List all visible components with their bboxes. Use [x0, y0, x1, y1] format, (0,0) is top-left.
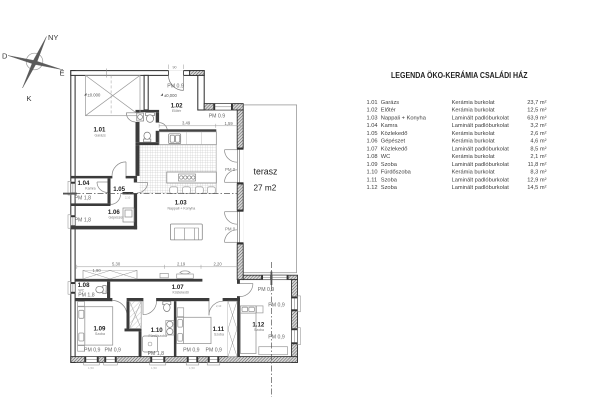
svg-text:23,7 m²: 23,7 m² — [527, 100, 546, 106]
svg-text:NY: NY — [48, 33, 58, 42]
svg-text:Nappali + Konyha: Nappali + Konyha — [381, 116, 427, 122]
svg-text:2,10: 2,10 — [102, 289, 108, 293]
svg-text:Kerámia burkolat: Kerámia burkolat — [452, 108, 495, 114]
svg-text:PM 0,9: PM 0,9 — [183, 347, 200, 353]
svg-text:Közlekedő: Közlekedő — [381, 146, 408, 152]
svg-text:PM 0.9: PM 0.9 — [209, 113, 226, 119]
svg-text:Laminált padlóburkolat: Laminált padlóburkolat — [452, 177, 510, 183]
svg-text:Laminált padlóburkolat: Laminált padlóburkolat — [452, 185, 510, 191]
svg-text:Előtér: Előtér — [381, 108, 396, 114]
svg-text:Garázs: Garázs — [381, 100, 399, 106]
svg-text:3,2 m²: 3,2 m² — [530, 123, 546, 129]
svg-text:terasz: terasz — [254, 167, 278, 177]
svg-text:1.08: 1.08 — [367, 154, 378, 160]
svg-text:Előtér: Előtér — [172, 109, 182, 113]
svg-text:2,10: 2,10 — [216, 304, 222, 308]
svg-text:Szoba: Szoba — [381, 185, 398, 191]
svg-text:K: K — [27, 94, 32, 103]
svg-text:Kerámia burkolat: Kerámia burkolat — [452, 139, 495, 145]
svg-text:1.03: 1.03 — [367, 116, 378, 122]
svg-text:PM 0,9: PM 0,9 — [105, 347, 122, 353]
svg-text:Kamra: Kamra — [85, 186, 95, 190]
svg-text:12,5 m²: 12,5 m² — [527, 108, 546, 114]
svg-text:1.06: 1.06 — [367, 139, 378, 145]
svg-text:PM 1,8: PM 1,8 — [78, 292, 95, 298]
svg-text:Szoba: Szoba — [95, 332, 105, 336]
svg-text:2,6 m²: 2,6 m² — [530, 131, 546, 137]
svg-text:Kerámia burkolat: Kerámia burkolat — [452, 100, 495, 106]
svg-text:Kerámia burkolat: Kerámia burkolat — [452, 170, 495, 176]
svg-text:1,50: 1,50 — [88, 366, 94, 370]
svg-text:Szoba: Szoba — [381, 162, 398, 168]
svg-text:Közlekedő: Közlekedő — [173, 290, 189, 294]
svg-text:Szoba: Szoba — [254, 328, 264, 332]
svg-text:63,9 m²: 63,9 m² — [527, 116, 546, 122]
svg-text:1.01: 1.01 — [367, 100, 378, 106]
svg-text:PM 0,9: PM 0,9 — [206, 347, 223, 353]
svg-text:12,9 m²: 12,9 m² — [527, 177, 546, 183]
svg-text:1,50: 1,50 — [151, 366, 157, 370]
svg-text:2,1 m²: 2,1 m² — [530, 154, 546, 160]
svg-text:PM 1,8: PM 1,8 — [75, 196, 92, 202]
svg-text:4,6 m²: 4,6 m² — [530, 139, 546, 145]
svg-text:Közlekedő: Közlekedő — [381, 131, 408, 137]
svg-text:1,50: 1,50 — [189, 366, 195, 370]
svg-text:5,30: 5,30 — [112, 261, 121, 266]
svg-text:±0,000: ±0,000 — [164, 93, 177, 98]
svg-text:PM 0,9: PM 0,9 — [268, 303, 285, 309]
svg-text:2,19: 2,19 — [177, 261, 186, 266]
svg-text:Gépészet: Gépészet — [109, 216, 124, 220]
svg-text:Gépészet: Gépészet — [381, 139, 406, 145]
svg-text:27 m2: 27 m2 — [254, 184, 277, 193]
svg-text:1,90: 1,90 — [93, 268, 102, 273]
svg-text:1.04: 1.04 — [367, 123, 378, 129]
svg-text:8,3 m²: 8,3 m² — [530, 170, 546, 176]
svg-text:WC: WC — [381, 154, 390, 160]
svg-text:1.12: 1.12 — [367, 185, 378, 191]
svg-text:±0.000: ±0.000 — [88, 93, 101, 98]
svg-text:D: D — [2, 52, 8, 61]
svg-text:PM 1,8: PM 1,8 — [75, 218, 92, 224]
svg-text:Laminált padlóburkolat: Laminált padlóburkolat — [452, 162, 510, 168]
svg-text:1,59: 1,59 — [225, 121, 234, 126]
svg-text:PM 1,8: PM 1,8 — [148, 351, 165, 357]
svg-text:8,5 m²: 8,5 m² — [530, 146, 546, 152]
svg-text:2,20: 2,20 — [214, 261, 223, 266]
svg-text:11,8 m²: 11,8 m² — [528, 162, 547, 168]
svg-text:PM 0: PM 0 — [225, 227, 236, 232]
svg-text:3,49: 3,49 — [182, 120, 191, 125]
svg-text:1.05: 1.05 — [113, 186, 125, 193]
svg-text:1.02: 1.02 — [367, 108, 378, 114]
svg-text:PM 0,9: PM 0,9 — [268, 335, 285, 341]
svg-text:90: 90 — [173, 66, 177, 70]
svg-text:PM 0.9: PM 0.9 — [167, 83, 184, 89]
svg-text:1.03: 1.03 — [175, 200, 187, 207]
svg-text:Fürdőszoba: Fürdőszoba — [381, 170, 412, 176]
svg-text:1.11: 1.11 — [367, 177, 378, 183]
svg-text:Nappali + Konyha: Nappali + Konyha — [168, 207, 196, 211]
svg-text:1.10: 1.10 — [367, 170, 378, 176]
svg-text:Laminált padlóburkolat: Laminált padlóburkolat — [452, 116, 510, 122]
svg-text:PM 0,9: PM 0,9 — [84, 347, 101, 353]
svg-text:Fürdőszoba: Fürdőszoba — [149, 334, 168, 338]
svg-text:Laminált padlóburkolat: Laminált padlóburkolat — [452, 146, 510, 152]
svg-text:1.07: 1.07 — [367, 146, 378, 152]
svg-text:PM 0,9: PM 0,9 — [258, 287, 275, 293]
svg-text:1.05: 1.05 — [367, 131, 378, 137]
svg-text:Kerámia burkolat: Kerámia burkolat — [452, 131, 495, 137]
svg-text:Laminált padlóburkolat: Laminált padlóburkolat — [452, 123, 510, 129]
svg-text:1.09: 1.09 — [367, 162, 378, 168]
svg-text:Kamra: Kamra — [381, 123, 399, 129]
svg-text:14,5 m²: 14,5 m² — [527, 185, 546, 191]
svg-text:Garázs: Garázs — [95, 133, 107, 137]
svg-text:Szoba: Szoba — [214, 333, 224, 337]
svg-text:2,10: 2,10 — [125, 196, 131, 200]
svg-text:Kerámia burkolat: Kerámia burkolat — [452, 154, 495, 160]
svg-text:É: É — [60, 69, 65, 78]
svg-text:PM 0: PM 0 — [225, 167, 236, 172]
svg-text:Szoba: Szoba — [381, 177, 398, 183]
svg-text:LEGENDA ÖKO-KERÁMIA CSALÁDI HÁ: LEGENDA ÖKO-KERÁMIA CSALÁDI HÁZ — [391, 70, 528, 80]
